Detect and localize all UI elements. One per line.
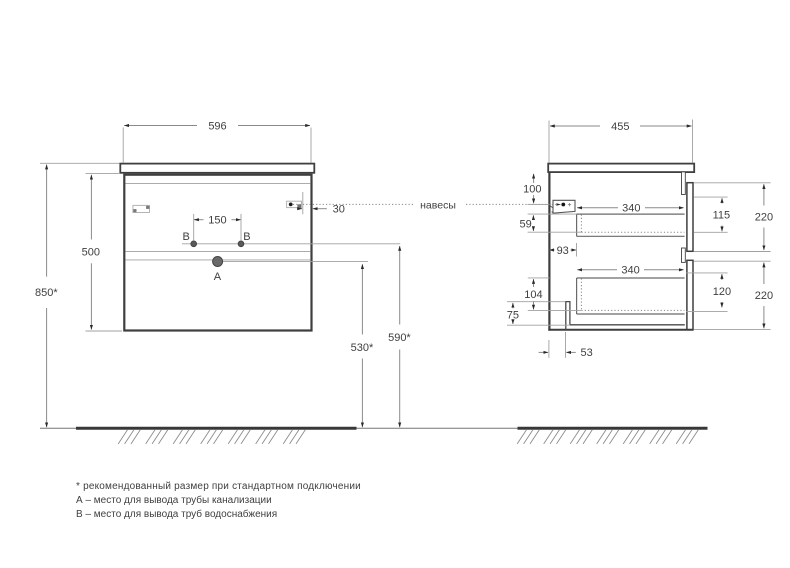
svg-text:220: 220 bbox=[755, 211, 773, 223]
svg-text:115: 115 bbox=[713, 209, 731, 221]
svg-text:340: 340 bbox=[622, 203, 640, 215]
svg-text:А – место для вывода трубы кан: А – место для вывода трубы канализации bbox=[76, 494, 272, 506]
svg-text:500: 500 bbox=[82, 247, 100, 259]
svg-text:навесы: навесы bbox=[420, 199, 456, 211]
svg-text:340: 340 bbox=[621, 265, 639, 277]
svg-text:104: 104 bbox=[524, 289, 542, 301]
svg-text:455: 455 bbox=[611, 121, 629, 133]
svg-text:120: 120 bbox=[713, 286, 731, 298]
svg-text:В – место для вывода труб водо: В – место для вывода труб водоснабжения bbox=[76, 508, 277, 520]
svg-text:590*: 590* bbox=[388, 332, 411, 344]
svg-text:530*: 530* bbox=[351, 342, 374, 354]
svg-text:150: 150 bbox=[208, 215, 226, 227]
svg-text:30: 30 bbox=[333, 204, 345, 216]
svg-text:B: B bbox=[243, 231, 250, 243]
svg-text:* рекомендованный размер при с: * рекомендованный размер при стандартном… bbox=[76, 481, 361, 492]
svg-text:93: 93 bbox=[557, 245, 569, 257]
svg-text:220: 220 bbox=[755, 290, 773, 302]
svg-text:596: 596 bbox=[208, 120, 226, 132]
svg-text:53: 53 bbox=[581, 347, 593, 359]
svg-text:75: 75 bbox=[507, 309, 519, 321]
svg-text:850*: 850* bbox=[35, 287, 58, 299]
svg-text:100: 100 bbox=[523, 184, 541, 196]
svg-text:59: 59 bbox=[520, 218, 532, 230]
svg-text:A: A bbox=[214, 271, 222, 283]
svg-text:B: B bbox=[182, 231, 189, 243]
